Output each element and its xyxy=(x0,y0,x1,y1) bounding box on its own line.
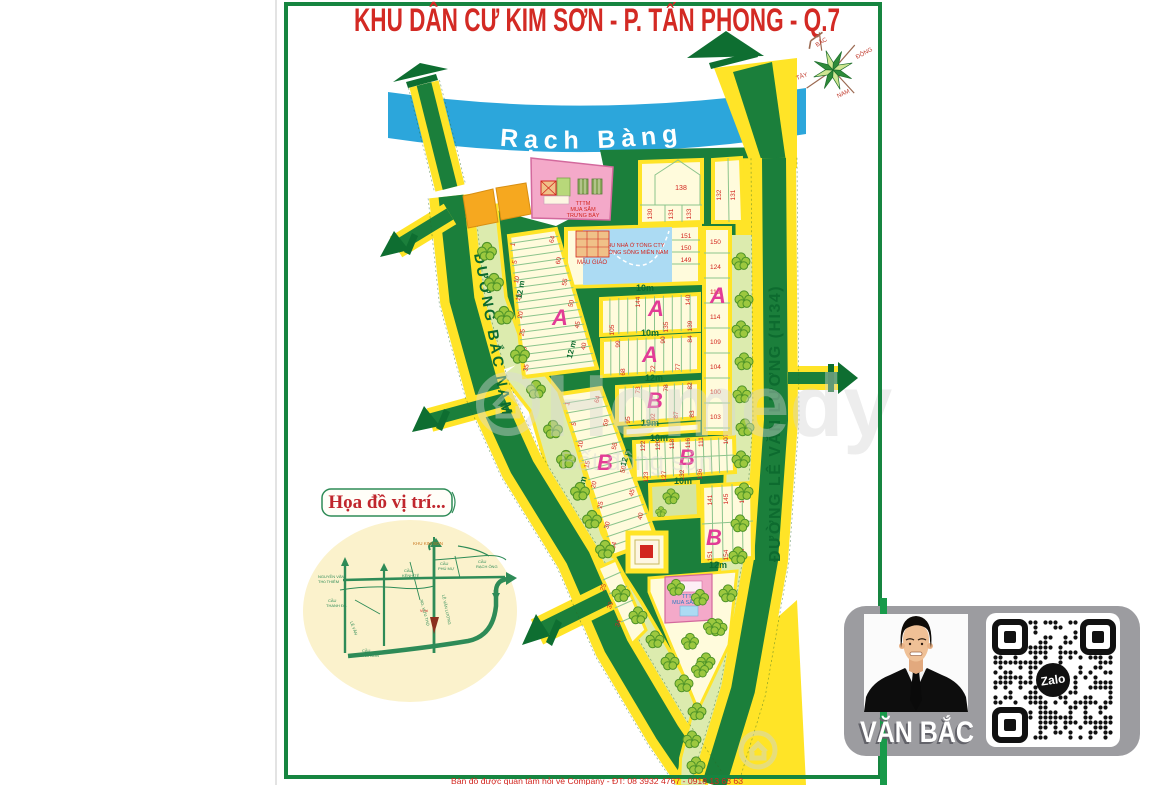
svg-text:144: 144 xyxy=(635,296,642,307)
svg-text:139: 139 xyxy=(687,320,694,331)
svg-text:131: 131 xyxy=(668,208,675,219)
svg-text:138: 138 xyxy=(675,185,687,192)
svg-text:A: A xyxy=(647,296,664,321)
svg-text:10m: 10m xyxy=(674,476,692,486)
svg-text:84: 84 xyxy=(687,335,694,343)
svg-text:KHU NHÀ Ở TỔNG CTY: KHU NHÀ Ở TỔNG CTY xyxy=(604,242,665,249)
svg-text:145: 145 xyxy=(723,493,730,504)
svg-text:133: 133 xyxy=(686,208,693,219)
svg-text:135: 135 xyxy=(663,321,670,332)
svg-text:A: A xyxy=(551,305,568,330)
svg-text:140: 140 xyxy=(685,294,692,305)
svg-text:149: 149 xyxy=(681,257,692,264)
svg-text:RẠCH ÔNG: RẠCH ÔNG xyxy=(476,564,498,569)
svg-text:Bản đồ được quan tâm hỏi về Co: Bản đồ được quan tâm hỏi về Company - ĐT… xyxy=(451,776,743,785)
svg-text:THANH ĐA: THANH ĐA xyxy=(326,603,347,608)
svg-text:90: 90 xyxy=(660,336,667,344)
svg-text:10m: 10m xyxy=(641,328,659,338)
svg-text:PHÚ MỰ: PHÚ MỰ xyxy=(438,566,455,571)
svg-text:132: 132 xyxy=(716,189,723,200)
svg-text:150: 150 xyxy=(710,239,721,246)
svg-text:KHU DÂN CƯ KIM SƠN - P. TẤN PH: KHU DÂN CƯ KIM SƠN - P. TẤN PHONG - Q.7 xyxy=(354,2,840,38)
svg-text:A: A xyxy=(709,283,726,308)
svg-text:TRƯNG BÀY: TRƯNG BÀY xyxy=(567,212,600,219)
svg-text:MẬU GIÁO: MẬU GIÁO xyxy=(577,259,607,266)
svg-text:131: 131 xyxy=(730,189,737,200)
svg-text:12m: 12m xyxy=(709,560,727,570)
svg-text:99: 99 xyxy=(615,340,622,348)
svg-text:130: 130 xyxy=(647,208,654,219)
svg-text:Homedy: Homedy xyxy=(545,356,892,455)
svg-text:105: 105 xyxy=(609,324,616,335)
svg-text:MUA SẮM: MUA SẮM xyxy=(570,205,596,213)
svg-text:KÊNH TẺ: KÊNH TẺ xyxy=(402,573,420,578)
svg-text:10m: 10m xyxy=(636,283,654,293)
svg-text:124: 124 xyxy=(710,264,721,271)
svg-text:Họa đồ vị trí...: Họa đồ vị trí... xyxy=(328,492,445,513)
svg-text:Bất động sản: Bất động sản xyxy=(560,446,713,476)
svg-text:ĐƯỜNG SÔNG MIỀN NAM: ĐƯỜNG SÔNG MIỀN NAM xyxy=(600,249,669,256)
svg-text:114: 114 xyxy=(710,314,721,321)
svg-text:ÔNG BỐN: ÔNG BỐN xyxy=(360,653,379,658)
svg-text:THủ THIÊM: THủ THIÊM xyxy=(318,579,339,584)
svg-text:B: B xyxy=(706,525,722,550)
svg-text:109: 109 xyxy=(710,339,721,346)
svg-text:Vị trí: Vị trí xyxy=(420,608,429,613)
svg-text:151: 151 xyxy=(681,233,692,240)
svg-text:KHU KIM SƠN: KHU KIM SƠN xyxy=(413,541,443,546)
svg-text:141: 141 xyxy=(707,494,714,505)
svg-text:150: 150 xyxy=(681,245,692,252)
svg-text:VĂN BẮC: VĂN BẮC xyxy=(860,715,974,749)
